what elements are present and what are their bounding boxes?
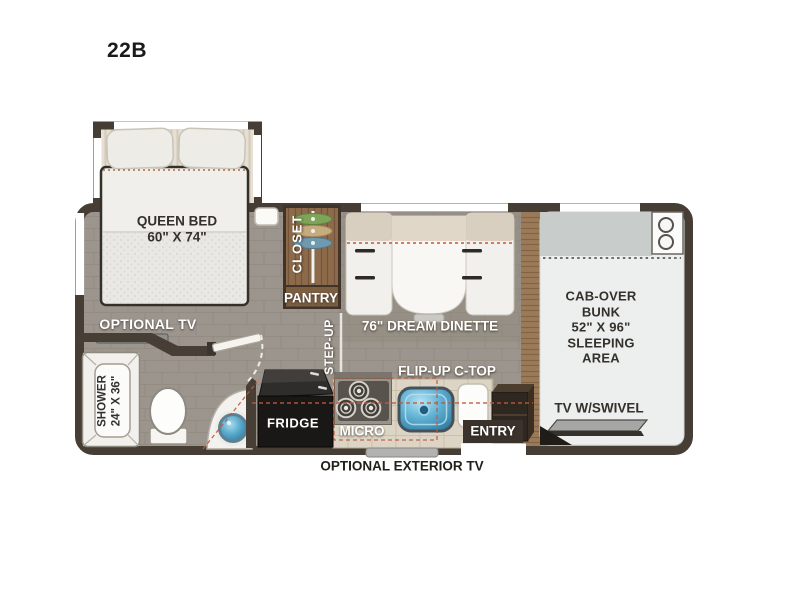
table-window-band (392, 216, 466, 241)
window-slide-right (253, 135, 261, 197)
shower-label: SHOWER 24" X 36" (97, 375, 124, 427)
optional-tv-label: OPTIONAL TV (99, 316, 196, 332)
fridge (258, 370, 333, 447)
bathroom-sink (217, 412, 250, 445)
stove-micro (334, 372, 392, 425)
kitchen-sink (399, 388, 453, 431)
entry-label: ENTRY (470, 424, 515, 439)
bench-right-back (466, 213, 514, 241)
optional-exterior-tv-label: OPTIONAL EXTERIOR TV (320, 459, 483, 474)
toilet (150, 388, 187, 444)
swivel-tv-base (545, 431, 644, 436)
cab-over-line2: BUNK (566, 304, 637, 320)
cab-over-line4: SLEEPING (566, 335, 637, 351)
cab-over-bunk-label: CAB-OVER BUNK 52" X 96" SLEEPING AREA (566, 288, 637, 366)
flip-up-ctop-label: FLIP-UP C-TOP (398, 364, 496, 379)
shower-line2: 24" X 36" (110, 375, 124, 427)
model-number: 22B (107, 39, 147, 63)
pillow-right (178, 128, 245, 169)
shower-line1: SHOWER (97, 375, 111, 427)
cab-over-line5: AREA (566, 350, 637, 366)
console-circle-1 (659, 218, 673, 232)
cab-over-line3: 52" X 96" (566, 319, 637, 335)
window-front (560, 203, 640, 211)
entry-opening (461, 444, 526, 456)
pillow-left (106, 128, 173, 169)
queen-bed-label: QUEEN BED (137, 214, 217, 229)
swivel-tv (548, 420, 647, 431)
exterior-tv-bar (366, 448, 438, 457)
console-circle-2 (659, 235, 673, 249)
window-dinette (361, 203, 508, 211)
queen-bed-size: 60" X 74" (147, 230, 206, 245)
nightstand (255, 208, 278, 225)
micro-label: MICRO (340, 424, 385, 439)
dinette (346, 213, 514, 322)
step-up-label: STEP-UP (322, 319, 336, 375)
dinette-label: 76" DREAM DINETTE (362, 319, 498, 334)
cab-dash-band (540, 212, 652, 256)
fridge-label: FRIDGE (267, 416, 319, 431)
tv-swivel-label: TV W/SWIVEL (554, 401, 643, 416)
bench-left-back (346, 213, 392, 241)
closet-label: CLOSET (290, 215, 305, 274)
window-slide-top (114, 122, 248, 130)
window-rear-left (76, 213, 85, 295)
cab-over-line1: CAB-OVER (566, 288, 637, 304)
pantry-label: PANTRY (284, 291, 338, 306)
floorplan-graphic (0, 0, 800, 600)
floorplan-page: 22B QUEEN BED 60" X 74" OPTIONAL TV CLOS… (0, 0, 800, 600)
